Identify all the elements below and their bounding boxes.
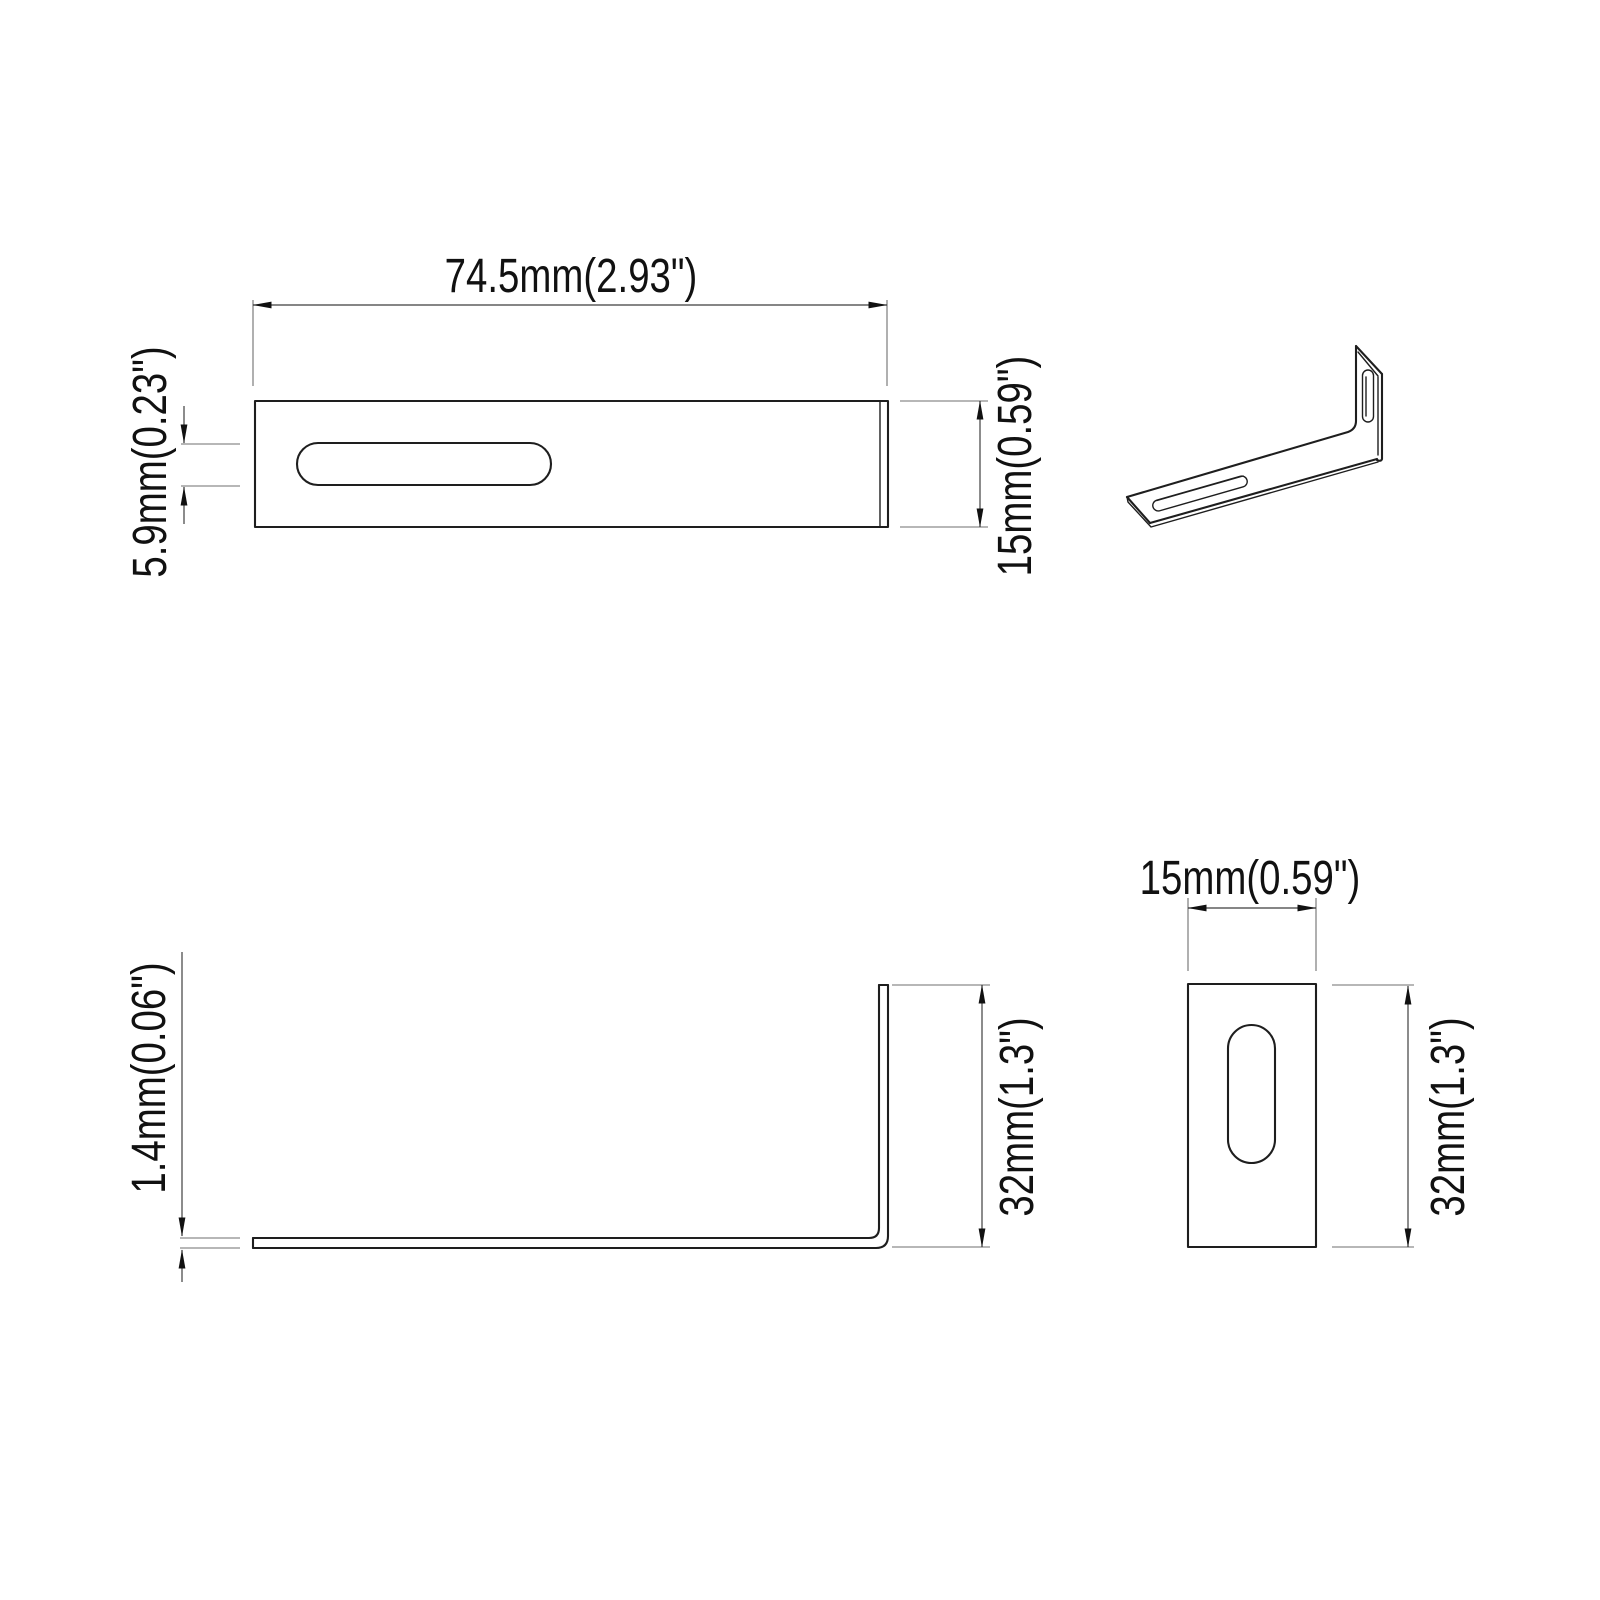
iso-arm-slot [1151,475,1248,513]
slot-width-dimension [181,406,240,524]
iso-arm-end-edge [1127,497,1150,523]
technical-drawing-page: 74.5mm(2.93") 5.9mm(0.23") 15mm(0.59") 1… [0,0,1600,1600]
side-view-inner-profile [253,985,879,1238]
side-height-dimension [892,985,990,1247]
iso-flange-top-inner [1358,352,1378,376]
end-width-dimension [1188,898,1316,971]
top-view-drawing [181,300,988,527]
side-view-outer-profile [253,985,888,1248]
iso-arm-near-edge [1150,459,1377,523]
end-width-label: 15mm(0.59") [1140,855,1361,903]
bracket-drawing-svg [0,0,1600,1600]
side-view-drawing [180,952,990,1282]
iso-arm-slot-inner [1157,476,1243,501]
top-view-outline [255,401,888,527]
end-view-slot [1228,1025,1275,1163]
end-view-outline [1188,984,1316,1247]
end-height-label: 32mm(1.3") [1425,1017,1473,1216]
end-height-dimension [1332,985,1414,1247]
slot-width-label: 5.9mm(0.23") [127,346,175,577]
top-height-label: 15mm(0.59") [992,356,1040,577]
side-height-label: 32mm(1.3") [994,1017,1042,1216]
top-view-slot [297,443,551,485]
iso-view-drawing [1127,346,1382,527]
iso-flange-slot [1363,370,1374,422]
top-width-dimension [253,300,887,386]
side-thickness-dimension [180,952,240,1282]
end-view-drawing [1188,898,1414,1247]
side-thickness-label: 1.4mm(0.06") [126,962,174,1193]
top-height-dimension [900,401,988,527]
top-width-label: 74.5mm(2.93") [445,253,698,301]
